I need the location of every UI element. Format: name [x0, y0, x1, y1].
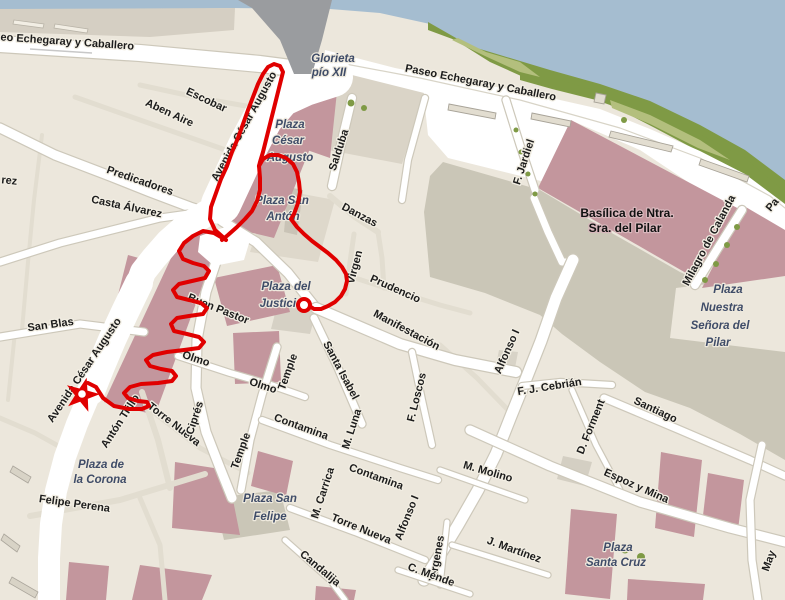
svg-text:pío XII: pío XII	[311, 67, 347, 79]
svg-text:la Corona: la Corona	[73, 474, 127, 486]
svg-text:Sra. del Pilar: Sra. del Pilar	[589, 221, 662, 235]
svg-text:Plaza: Plaza	[713, 284, 743, 296]
svg-text:Glorieta: Glorieta	[311, 53, 355, 65]
svg-text:Plaza San: Plaza San	[243, 493, 297, 505]
svg-text:Plaza de: Plaza de	[78, 459, 125, 471]
svg-text:rez: rez	[1, 174, 18, 187]
svg-text:César: César	[272, 135, 304, 147]
svg-text:Santa Cruz: Santa Cruz	[586, 557, 646, 569]
svg-text:Plaza del: Plaza del	[261, 281, 311, 293]
svg-text:Felipe: Felipe	[253, 511, 287, 523]
svg-text:Nuestra: Nuestra	[701, 302, 744, 314]
svg-text:Señora del: Señora del	[691, 320, 751, 332]
svg-text:Basílica de Ntra.: Basílica de Ntra.	[580, 206, 673, 220]
svg-text:Plaza: Plaza	[603, 542, 633, 554]
svg-text:Plaza: Plaza	[275, 119, 305, 131]
svg-text:Pilar: Pilar	[706, 337, 731, 349]
